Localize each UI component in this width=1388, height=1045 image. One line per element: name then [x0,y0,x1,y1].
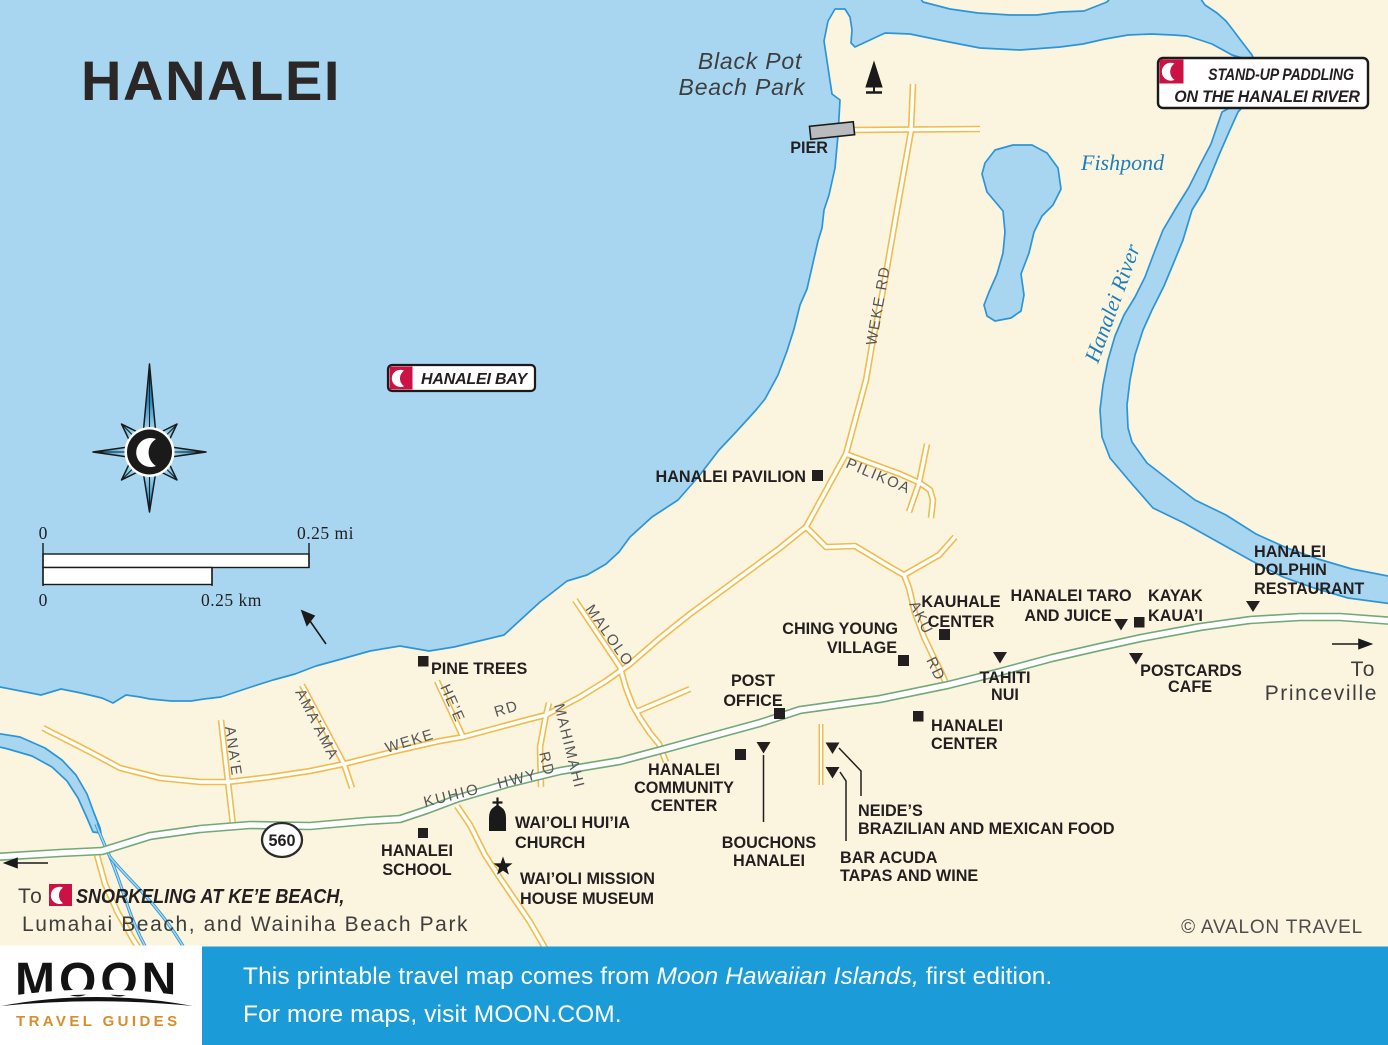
svg-text:SCHOOL: SCHOOL [382,861,451,879]
svg-text:CENTER: CENTER [928,613,995,631]
svg-text:HOUSE MUSEUM: HOUSE MUSEUM [520,890,654,908]
svg-text:DOLPHIN: DOLPHIN [1254,561,1327,579]
svg-text:Lumahai Beach, and Wainiha Bea: Lumahai Beach, and Wainiha Beach Park [22,913,469,936]
svg-text:CAFE: CAFE [1168,678,1212,696]
svg-text:HANALEI: HANALEI [381,842,453,860]
svg-text:560: 560 [268,832,295,850]
svg-text:Black Pot: Black Pot [698,48,803,74]
svg-text:TRAVEL GUIDES: TRAVEL GUIDES [16,1013,181,1030]
svg-text:WAI’OLI MISSION: WAI’OLI MISSION [520,870,655,888]
svg-text:BRAZILIAN AND MEXICAN FOOD: BRAZILIAN AND MEXICAN FOOD [858,820,1115,838]
svg-text:WAI’OLI HUI’IA: WAI’OLI HUI’IA [515,814,630,832]
svg-text:This printable travel map come: This printable travel map comes from Moo… [243,963,1052,990]
svg-text:STAND-UP PADDLING: STAND-UP PADDLING [1208,66,1354,84]
svg-text:CENTER: CENTER [931,735,998,753]
svg-text:TAHITI: TAHITI [980,669,1031,687]
svg-text:HANALEI PAVILION: HANALEI PAVILION [656,468,806,486]
svg-text:0: 0 [39,590,48,610]
svg-text:To: To [1351,658,1376,681]
svg-text:HANALEI: HANALEI [81,49,341,112]
svg-text:HANALEI: HANALEI [931,717,1003,735]
svg-text:For more maps, visit MOON.COM.: For more maps, visit MOON.COM. [243,1001,622,1028]
svg-text:KAYAK: KAYAK [1148,587,1203,605]
svg-text:HANALEI: HANALEI [648,761,720,779]
svg-text:Princeville: Princeville [1265,682,1378,705]
svg-text:0.25 km: 0.25 km [201,590,262,610]
svg-text:ON THE HANALEI RIVER: ON THE HANALEI RIVER [1174,88,1360,106]
svg-text:SNORKELING AT KE’E BEACH,: SNORKELING AT KE’E BEACH, [76,886,344,908]
svg-text:RESTAURANT: RESTAURANT [1254,580,1364,598]
svg-text:HANALEI TARO: HANALEI TARO [1010,587,1131,605]
svg-text:CENTER: CENTER [651,797,718,815]
svg-text:Beach Park: Beach Park [679,74,807,100]
svg-text:PIER: PIER [790,139,828,157]
svg-text:To: To [18,885,43,908]
svg-text:KAUA’I: KAUA’I [1148,607,1203,625]
svg-text:PINE TREES: PINE TREES [431,660,527,678]
svg-text:0: 0 [39,523,48,543]
svg-text:TAPAS AND WINE: TAPAS AND WINE [840,867,978,885]
svg-text:CHURCH: CHURCH [515,834,585,852]
svg-text:BOUCHONS: BOUCHONS [722,834,817,852]
svg-text:NEIDE’S: NEIDE’S [858,802,923,820]
svg-text:Fishpond: Fishpond [1080,150,1165,175]
svg-text:CHING YOUNG: CHING YOUNG [782,620,898,638]
svg-text:HANALEI: HANALEI [1254,543,1326,561]
svg-text:COMMUNITY: COMMUNITY [634,779,734,797]
svg-text:KAUHALE: KAUHALE [921,593,1000,611]
svg-text:0.25 mi: 0.25 mi [297,523,354,543]
svg-text:HANALEI BAY: HANALEI BAY [421,371,528,388]
svg-text:POST: POST [731,672,775,690]
svg-text:AND JUICE: AND JUICE [1024,607,1111,625]
svg-text:VILLAGE: VILLAGE [827,639,897,657]
svg-text:BAR ACUDA: BAR ACUDA [840,849,938,867]
svg-text:© AVALON TRAVEL: © AVALON TRAVEL [1181,917,1363,938]
svg-text:HANALEI: HANALEI [733,852,805,870]
svg-text:NUI: NUI [991,686,1019,704]
svg-text:OFFICE: OFFICE [723,692,783,710]
